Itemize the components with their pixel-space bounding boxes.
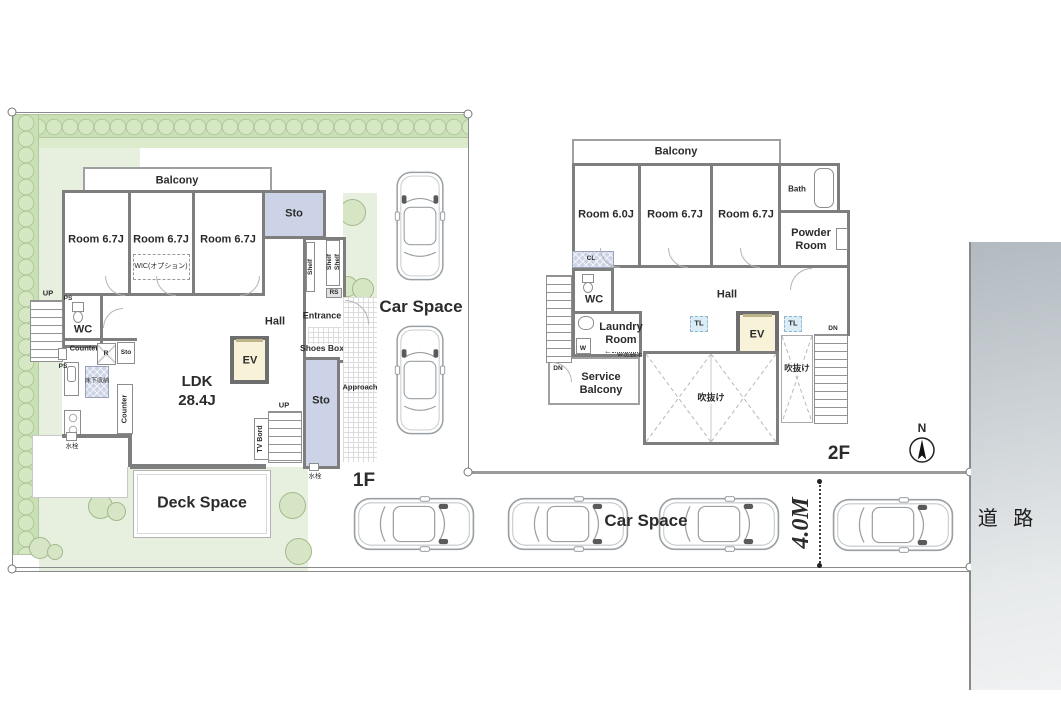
f2-wc-label: WC (585, 294, 603, 307)
f1-up-label-exterior: UP (43, 290, 53, 299)
tree (279, 492, 306, 519)
f1-faucet-label-left: 水栓 (66, 443, 79, 451)
road-width-label: 4.0M (787, 497, 815, 548)
car-bottom-4 (831, 497, 955, 553)
f1-shelf-right-label-b: Shelf (334, 254, 342, 270)
f1-counter-island-label: Counter (121, 395, 130, 424)
car-bottom-1 (352, 496, 476, 552)
f2-void-right-label: 吹抜け (783, 363, 811, 373)
f1-ps-label-b: PS (59, 363, 68, 371)
grass-strip (13, 138, 469, 148)
floorplan-canvas: 道 路 N 4.0M Balcony Room 6.7J Room 6.7J R… (0, 0, 1061, 707)
dim-dot (817, 563, 822, 568)
lot-line-south-a (12, 567, 970, 568)
f1-storage-big-label: Sto (312, 395, 330, 408)
f1-entrance-label: Entrance (303, 311, 342, 322)
lot-line-south-b (12, 571, 970, 572)
f1-car-space-label: Car Space (379, 297, 462, 317)
f2-laundry-label: Laundry Room (593, 321, 649, 347)
f2-void-right-x (782, 336, 812, 422)
site-car-space-label: Car Space (604, 511, 687, 531)
f1-hall-label: Hall (265, 316, 285, 329)
f2-bath-label: Bath (788, 184, 806, 193)
boundary-marker (464, 468, 473, 477)
f1-wc-label: WC (74, 324, 92, 337)
f1-storage-top-label: Sto (285, 208, 303, 221)
dim-dot (817, 479, 822, 484)
f2-room3-label: Room 6.7J (718, 209, 774, 222)
tree (285, 538, 312, 565)
f2-tl-left-label: TL (694, 320, 703, 329)
door-arc (790, 268, 812, 290)
f1-up-label-stairs: UP (279, 402, 289, 411)
f2-washer-label: W (580, 345, 586, 353)
f1-ps-box (58, 348, 67, 360)
f2-hall-label: Hall (717, 289, 737, 302)
lot-line-west (12, 112, 13, 571)
tree (339, 199, 366, 226)
f2-elevator-door (743, 314, 772, 317)
f1-elevator-label: EV (243, 355, 258, 368)
road-width-dim-line (819, 482, 821, 566)
f1-ldk-size-label: 28.4J (178, 392, 216, 410)
f1-faucet-box-left (66, 432, 77, 441)
f1-room2-label: Room 6.7J (133, 234, 189, 247)
road (971, 242, 1061, 690)
boundary-marker (8, 108, 17, 117)
lot-line-east-1f (468, 114, 469, 472)
f1-stairs (268, 411, 302, 463)
car-top-1 (392, 170, 448, 282)
lot-line-north (12, 112, 469, 113)
f2-room1-label: Room 6.0J (578, 209, 634, 222)
f1-storage-small-label: Sto (121, 349, 131, 357)
f1-shelf-right-label-a: Shelf (326, 254, 334, 270)
f2-void-main-label: 吹抜け (695, 393, 726, 404)
f2-closet-label: CL (587, 255, 596, 263)
f1-faucet-label-right: 水栓 (309, 473, 322, 481)
f2-stairs-left (546, 275, 572, 363)
car-top-2 (392, 324, 448, 436)
f2-dn-label-right: DN (828, 325, 837, 333)
f1-wic-label: WIC(オプション) (134, 263, 187, 271)
f1-wall-kitchen-north (62, 338, 137, 341)
f2-toilet-bowl (583, 282, 593, 293)
f1-ldk-label: LDK (182, 373, 213, 391)
f2-laundry-sink (578, 316, 594, 330)
boundary-marker (464, 110, 473, 119)
f1-approach-label: Approach (342, 384, 377, 393)
f1-underfloor-label: 床下収納 (85, 378, 109, 385)
f2-powder-label: Powder Room (783, 227, 839, 253)
f1-rs-label: RS (329, 289, 338, 297)
f1-wall-south-ldk (130, 464, 266, 469)
f1-wall-step (128, 434, 132, 467)
f1-elevator-door (236, 339, 263, 342)
compass-n-label: N (918, 421, 927, 435)
f1-counter-label: Counter (70, 345, 99, 354)
f2-balcony-label: Balcony (655, 146, 698, 159)
f1-storage-big (303, 357, 340, 469)
compass-icon (908, 436, 936, 464)
f2-service-balcony-label: Service Balcony (561, 371, 641, 397)
f2-bathtub (814, 168, 834, 208)
f1-sink-basin (67, 366, 76, 382)
f1-floor-label: 1F (353, 470, 375, 492)
f1-deck-label: Deck Space (157, 495, 247, 514)
f2-stairs-right (814, 334, 848, 424)
f1-genkan-tile (308, 327, 342, 344)
f2-drying-arrow: ← (604, 346, 612, 355)
f1-tv-board-label: TV Bord (257, 425, 265, 452)
f1-shoesbox-label: Shoes Box (300, 343, 344, 353)
f1-ps-label-a: PS (64, 295, 73, 303)
boundary-marker (8, 565, 17, 574)
f1-faucet-box-right (309, 463, 319, 471)
tree (107, 502, 126, 521)
f1-room3-label: Room 6.7J (200, 234, 256, 247)
f1-fridge-label: R (104, 350, 109, 358)
f1-toilet-bowl (73, 311, 83, 323)
tree (47, 544, 63, 560)
hedge-top (13, 114, 469, 138)
f2-floor-label: 2F (828, 443, 850, 465)
f2-wall-east (847, 268, 850, 336)
f1-balcony-label: Balcony (156, 175, 199, 188)
f2-tl-right-label: TL (788, 320, 797, 329)
lot-line-mid (468, 471, 971, 474)
f1-shelf-left-label: Shelf (307, 259, 315, 275)
f1-room1-label: Room 6.7J (68, 234, 124, 247)
road-label: 道 路 (978, 508, 1039, 532)
f2-elevator-label: EV (750, 329, 765, 342)
f2-room2-label: Room 6.7J (647, 209, 703, 222)
